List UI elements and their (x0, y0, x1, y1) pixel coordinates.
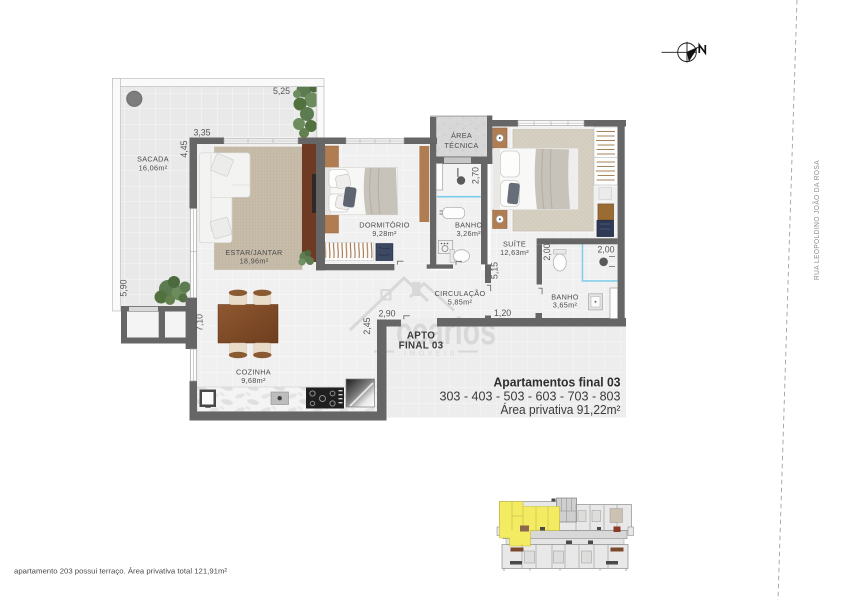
svg-text:3,65m²: 3,65m² (553, 301, 578, 310)
svg-text:12,63m²: 12,63m² (500, 248, 529, 257)
svg-text:1,20: 1,20 (494, 308, 511, 318)
svg-text:5,25: 5,25 (273, 86, 290, 96)
svg-text:2,90: 2,90 (378, 309, 395, 319)
svg-text:Área privativa 91,22m²: Área privativa 91,22m² (501, 402, 621, 417)
svg-text:5,85m²: 5,85m² (448, 298, 473, 307)
svg-text:2,45: 2,45 (362, 317, 372, 334)
svg-text:2,00: 2,00 (542, 243, 552, 260)
svg-text:5,15: 5,15 (490, 262, 500, 279)
svg-text:ÁREA: ÁREA (451, 131, 472, 140)
svg-text:7,10: 7,10 (195, 314, 205, 331)
svg-text:303 - 403 - 503 - 603 - 703 -: 303 - 403 - 503 - 603 - 703 - 803 (440, 390, 621, 404)
svg-text:5,90: 5,90 (119, 279, 129, 296)
svg-text:SACADA: SACADA (137, 155, 169, 164)
svg-text:4,45: 4,45 (179, 140, 189, 157)
svg-text:16,06m²: 16,06m² (139, 164, 168, 173)
svg-text:9,68m²: 9,68m² (241, 376, 266, 385)
svg-text:apartamento 203 possui terraço: apartamento 203 possui terraço. Área pri… (14, 567, 227, 576)
svg-text:FINAL 03: FINAL 03 (399, 341, 444, 352)
svg-text:RUA LEOPOLDINO JOÃO DA ROSA: RUA LEOPOLDINO JOÃO DA ROSA (812, 160, 821, 280)
svg-text:18,96m²: 18,96m² (240, 257, 269, 266)
svg-text:3,26m²: 3,26m² (456, 229, 481, 238)
svg-text:2,00: 2,00 (597, 245, 614, 255)
svg-text:9,28m²: 9,28m² (372, 229, 397, 238)
svg-text:2,70: 2,70 (471, 167, 481, 184)
svg-text:3,35: 3,35 (193, 128, 210, 138)
svg-text:TÉCNICA: TÉCNICA (444, 141, 478, 150)
svg-text:Apartamentos final 03: Apartamentos final 03 (494, 376, 621, 390)
